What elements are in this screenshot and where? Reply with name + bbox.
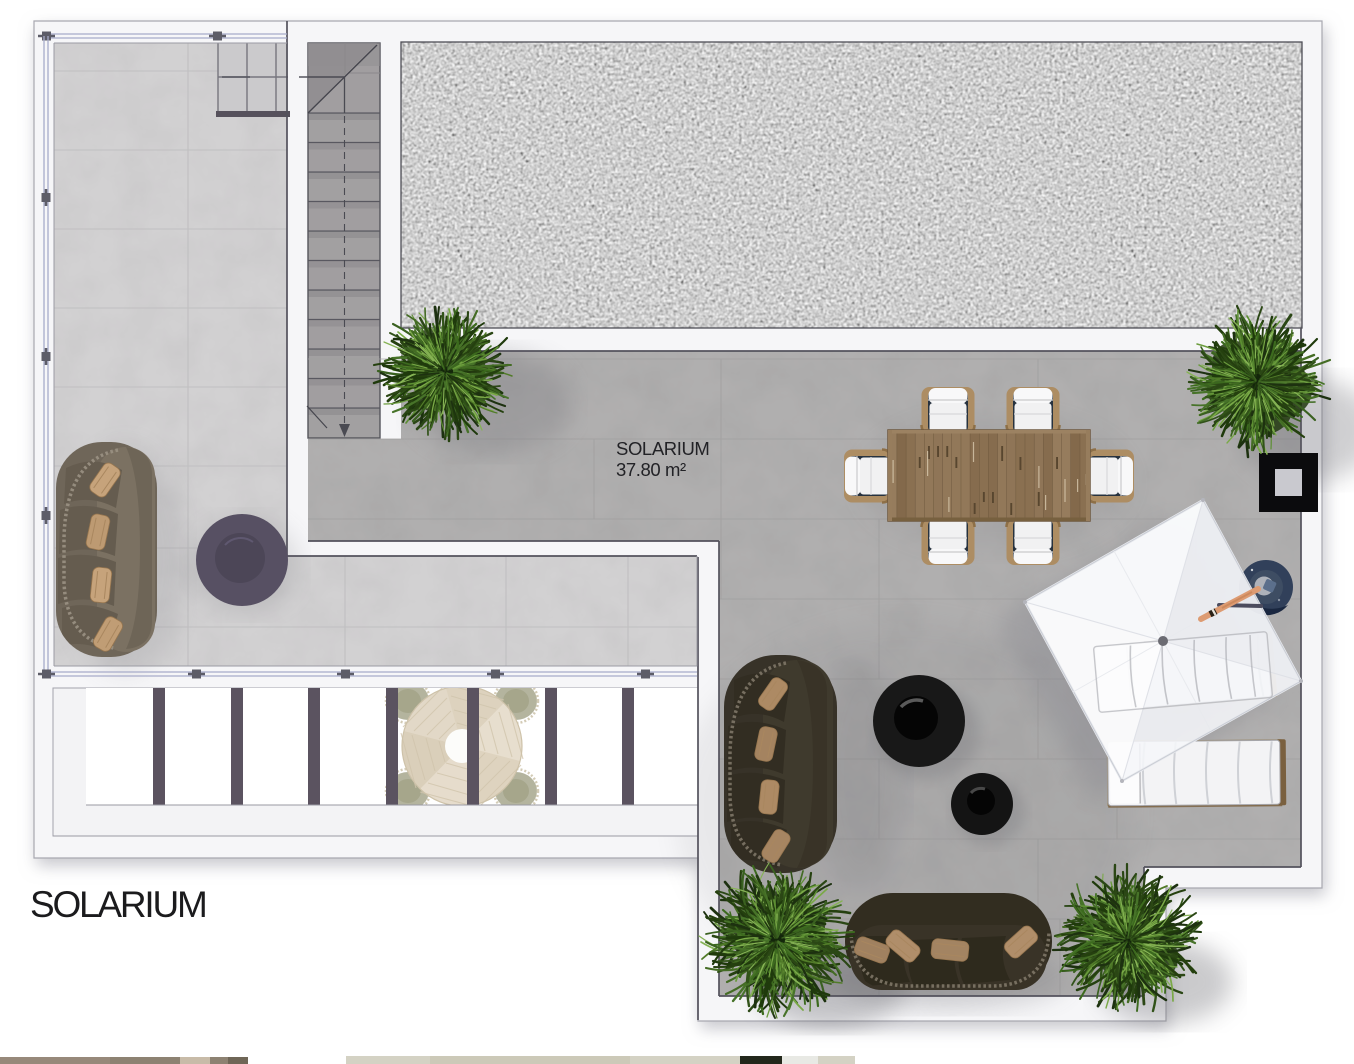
svg-text:37.80 m²: 37.80 m² — [616, 459, 686, 480]
svg-text:SOLARIUM: SOLARIUM — [616, 438, 709, 459]
svg-text:SOLARIUM: SOLARIUM — [30, 884, 206, 925]
